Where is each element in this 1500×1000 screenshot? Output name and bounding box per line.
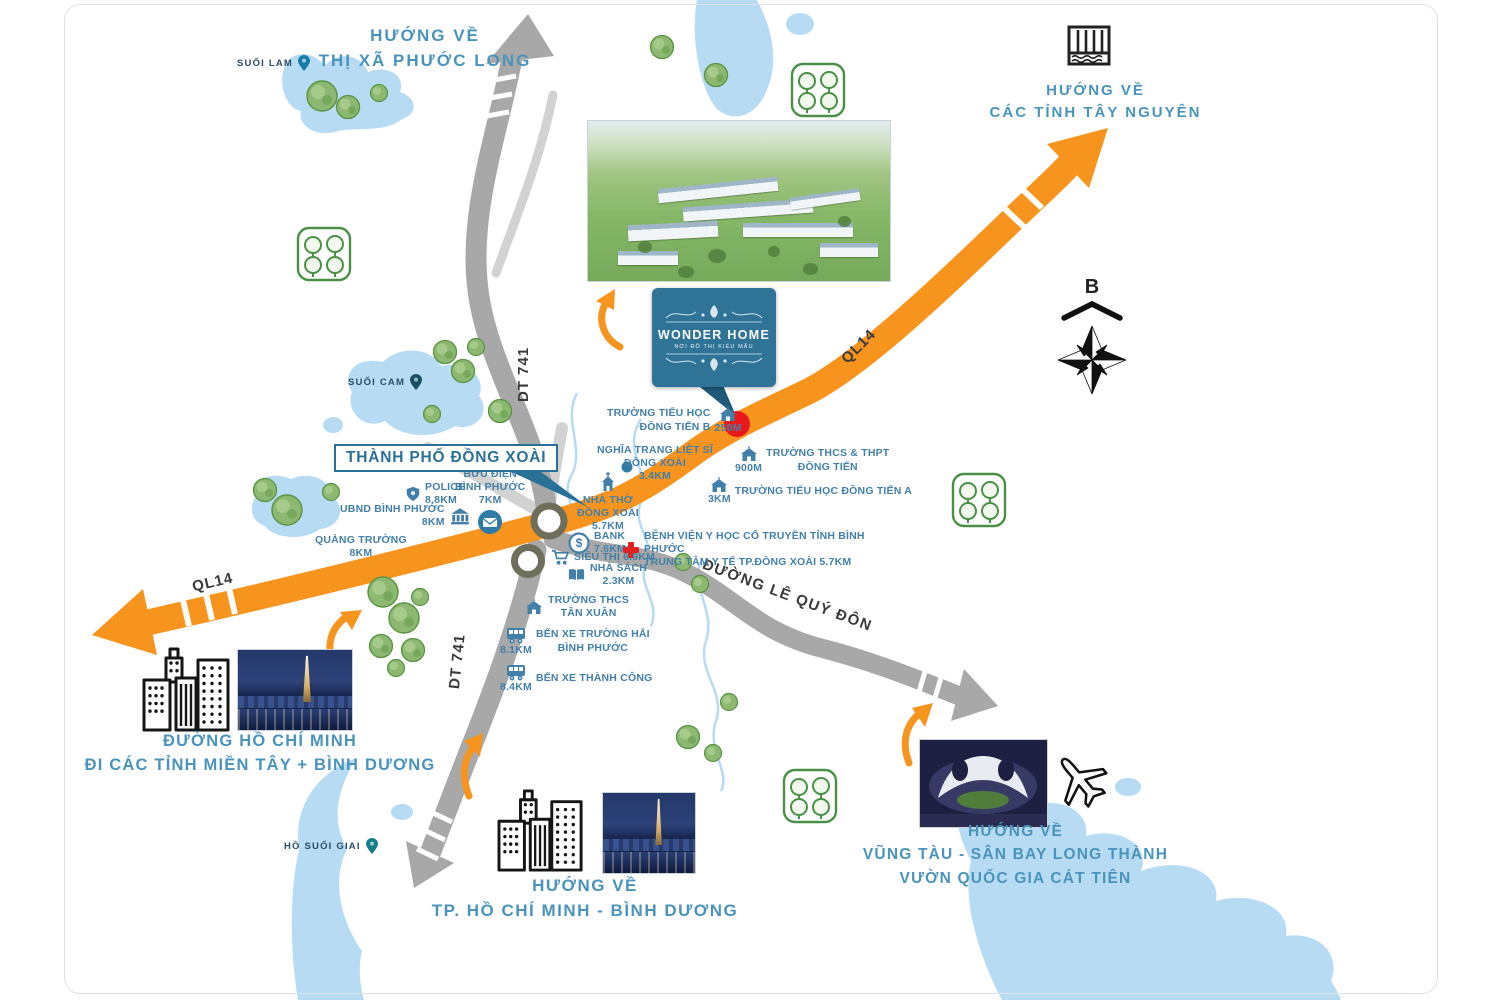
water-label-text: SUỐI LAM [237,58,293,69]
poi-school-dong-tien-b: TRƯỜNG TIỂU HỌC ĐỒNG TIẾN B 250M [607,406,742,435]
road-label-dt741-n: DT 741 [515,347,532,402]
poi-name: NHÀ SÁCH [590,562,647,575]
poi-school-thcs-thpt: 900M TRƯỜNG THCS & THPT ĐỒNG TIẾN [735,446,889,475]
police-icon [405,485,421,503]
poi-bus-thanh-cong: 8.4KM BẾN XE THÀNH CÔNG [500,663,653,694]
poi-distance: 3KM [708,493,731,506]
poi-name: TRƯỜNG THCS TÂN XUÂN [548,594,629,620]
project-sign: WONDER HOME NƠI ĐÔ THỊ KIỂU MẪU [652,288,776,387]
poi-church: NHÀ THỜ ĐỒNG XOÀI5.7KM [577,472,639,533]
water-label-suoi-lam: SUỐI LAM [237,55,310,71]
poi-bus-truong-hai: 8.1KM BẾN XE TRƯỜNG HẢI BÌNH PHƯỚC [500,626,650,657]
poi-name: NGHĨA TRANG LIỆT SĨ ĐỒNG XOÀI [597,444,713,470]
landmark81-photo [602,792,696,874]
location-map: HƯỚNG VỀ THỊ XÃ PHƯỚC LONG HƯỚNG VỀ CÁC … [0,0,1500,1000]
school-icon [718,406,738,422]
sluice-gate-icon [1066,24,1112,73]
school-icon [709,477,729,493]
government-building-icon [449,507,471,526]
poi-quang-truong: QUẢNG TRƯỜNG8KM [315,534,407,560]
poi-name: TRƯỜNG THCS & THPT ĐỒNG TIẾN [766,447,889,473]
poi-bookstore: NHÀ SÁCH2.3KM [567,562,647,588]
forest-icon [784,770,836,822]
forest-icon [298,228,350,280]
project-name: WONDER HOME [658,328,770,342]
forest-icon [792,64,844,116]
poi-name: TRƯỜNG TIỂU HỌC ĐỒNG TIẾN A [735,485,912,498]
poi-school-tan-xuan: TRƯỜNG THCS TÂN XUÂN [524,594,629,620]
compass-north-label: B [1077,276,1107,299]
map-pin-icon [410,374,422,390]
poi-distance: 8KM [350,547,373,560]
water-label-suoi-cam: SUỐI CAM [348,374,422,390]
poi-name: BẾN XE TRƯỜNG HẢI BÌNH PHƯỚC [536,628,650,654]
sign-ornament [662,302,766,326]
poi-name: BẾN XE THÀNH CÔNG [536,672,653,685]
water-label-ho-suoi-giai: HỒ SUỐI GIAI [284,838,378,854]
poi-name: UBND BÌNH PHƯỚC [340,503,445,516]
poi-name: QUẢNG TRƯỜNG [315,534,407,547]
school-icon [524,599,544,615]
poi-distance: 8.1KM [500,644,532,657]
poi-name: NHÀ THỜ ĐỒNG XOÀI [577,494,639,520]
poi-distance: 3.4KM [639,470,671,483]
book-icon [567,568,586,582]
city-buildings-icon [140,646,236,739]
city-label: THÀNH PHỐ ĐỒNG XOÀI [334,444,558,472]
poi-distance: 5.7KM [819,556,851,568]
city-buildings-icon [492,788,592,879]
direction-phuoc-long: HƯỚNG VỀ THỊ XÃ PHƯỚC LONG [295,24,555,73]
water-label-text: SUỐI CAM [348,377,405,388]
bus-icon [500,626,532,644]
water-label-text: HỒ SUỐI GIAI [284,841,361,852]
poi-distance: 7KM [479,494,502,507]
direction-tay-nguyen: HƯỚNG VỀ CÁC TỈNH TÂY NGUYÊN [948,80,1243,124]
poi-distance: 8KM [422,516,445,529]
poi-school-dong-tien-a: 3KM TRƯỜNG TIỂU HỌC ĐỒNG TIẾN A [708,477,912,506]
poi-ubnd: UBND BÌNH PHƯỚC8KM [340,503,471,529]
mail-icon [477,509,503,535]
project-tagline: NƠI ĐÔ THỊ KIỂU MẪU [674,344,753,350]
project-aerial-photo [587,120,891,282]
airplane-icon [1048,748,1112,817]
poi-hospital: BỆNH VIỆN Y HỌC CỔ TRUYỀN TỈNH BÌNH PHƯỚ… [622,530,882,569]
sign-ornament [662,350,766,374]
poi-distance: 900M [735,462,762,475]
direction-hcm-binh-duong: HƯỚNG VỀ TP. HỒ CHÍ MINH - BÌNH DƯƠNG [420,874,750,923]
poi-distance: 2.3KM [603,575,635,588]
poi-distance: 250M [715,422,742,435]
poi-name: TRƯỜNG TIỂU HỌC ĐỒNG TIẾN B [607,407,711,433]
direction-mien-tay: ĐƯỜNG HỒ CHÍ MINH ĐI CÁC TỈNH MIỀN TÂY +… [75,730,445,778]
landmark81-photo [237,649,353,731]
direction-vung-tau: HƯỚNG VỀ VŨNG TÀU - SÂN BAY LONG THÀNH V… [848,820,1183,890]
poi-distance: 8.4KM [500,681,532,694]
church-icon [599,472,617,492]
compass-rose-icon [1058,304,1126,394]
airport-photo [919,739,1048,828]
school-icon [739,446,759,462]
forest-icon [953,474,1005,526]
map-pin-icon [366,838,378,854]
map-pin-icon [298,55,310,71]
bus-icon [500,663,532,681]
